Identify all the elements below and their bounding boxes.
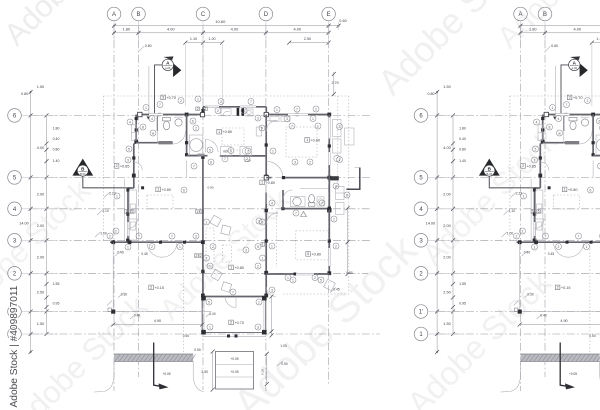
svg-text:Adobe Stock | #409897011: Adobe Stock | #409897011	[9, 285, 20, 407]
